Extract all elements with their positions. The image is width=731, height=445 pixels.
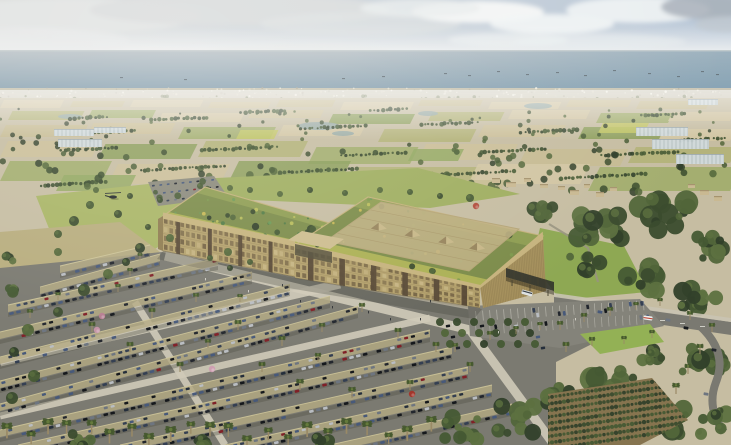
aerial-campus-rendering bbox=[0, 0, 731, 445]
light-wash bbox=[0, 0, 731, 445]
scene-canvas bbox=[0, 0, 731, 445]
light-overlay bbox=[0, 0, 731, 445]
